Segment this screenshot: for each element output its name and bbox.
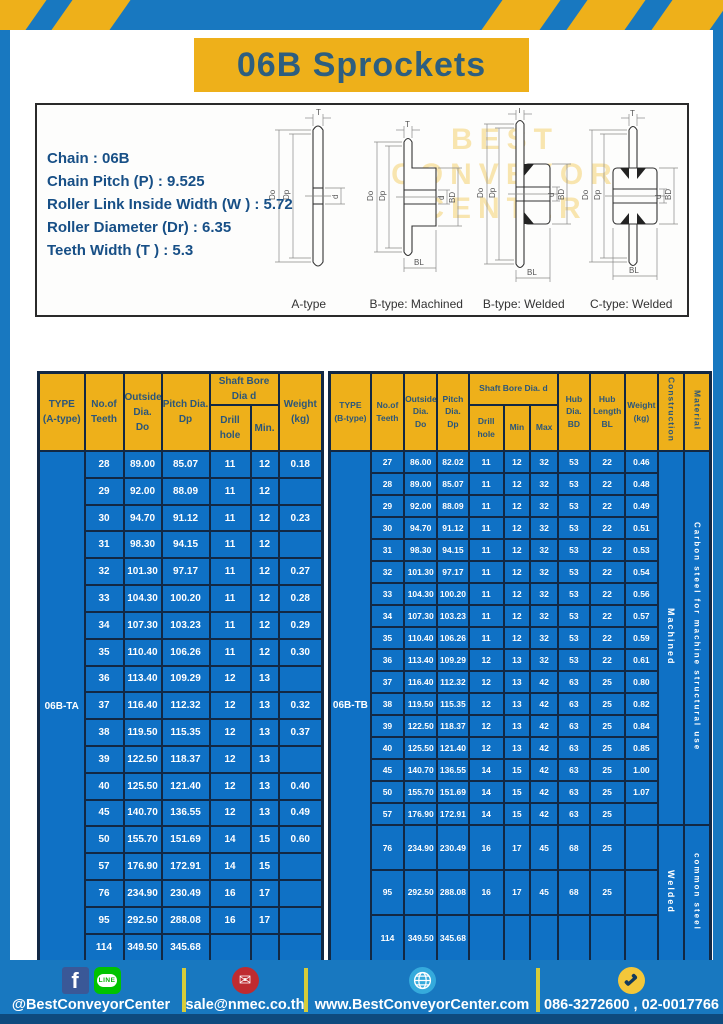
cell: 172.91 [162, 853, 210, 880]
table-row: 2889.0085.0711123253220.48 [330, 473, 711, 495]
cell: 57 [371, 803, 404, 825]
cell: 25 [590, 693, 625, 715]
cell: 115.35 [162, 719, 210, 746]
cell: 14 [210, 853, 251, 880]
facebook-icon: f [62, 967, 89, 994]
mail-icon: ✉ [232, 967, 259, 994]
cell: 25 [590, 803, 625, 825]
col-hub-length-b: Hub Length BL [590, 373, 625, 451]
cell: 12 [504, 495, 530, 517]
cell: 16 [210, 880, 251, 907]
cell: 12 [251, 451, 279, 478]
cell: 82.02 [437, 451, 468, 473]
col-outside-a: Outside Dia. Do [124, 373, 162, 452]
svg-text:d: d [437, 196, 446, 200]
cell: 22 [590, 561, 625, 583]
cell: 22 [590, 473, 625, 495]
svg-text:BD: BD [448, 192, 457, 203]
cell: 104.30 [124, 585, 162, 612]
cell: 11 [469, 473, 504, 495]
cell: 14 [469, 803, 504, 825]
cell: 94.15 [162, 531, 210, 558]
cell [469, 915, 504, 962]
table-a-type: TYPE (A-type) No.of Teeth Outside Dia. D… [37, 371, 324, 963]
cell: 12 [469, 649, 504, 671]
cell: 11 [210, 451, 251, 478]
cell: 103.23 [162, 612, 210, 639]
col-weight-a: Weight (kg) [279, 373, 323, 452]
cell: 114 [371, 915, 404, 962]
cell: 45 [85, 800, 124, 827]
cell: 125.50 [404, 737, 437, 759]
cell: 92.00 [404, 495, 437, 517]
cell: 230.49 [162, 880, 210, 907]
col-shaft-bore-a: Shaft Bore Dia d [210, 373, 279, 406]
cell: 107.30 [124, 612, 162, 639]
cell: 29 [371, 495, 404, 517]
cell: 95 [371, 870, 404, 915]
cell: 17 [504, 870, 530, 915]
cell: 32 [530, 451, 558, 473]
cell: 12 [210, 773, 251, 800]
cell: 136.55 [162, 800, 210, 827]
cell: 35 [85, 639, 124, 666]
cell [625, 825, 658, 870]
cell: 0.49 [625, 495, 658, 517]
cell: 32 [530, 517, 558, 539]
cell: 22 [590, 605, 625, 627]
cell: 0.54 [625, 561, 658, 583]
table-row: 76234.90230.491617456825Weldedcommon ste… [330, 825, 711, 870]
cell: 292.50 [124, 907, 162, 934]
cell [279, 666, 323, 693]
cell: 176.90 [404, 803, 437, 825]
svg-text:BD: BD [664, 189, 673, 200]
cell: 94.15 [437, 539, 468, 561]
col-min-b: Min [504, 405, 530, 451]
table-b-body: 06B-TB2786.0082.0211123253220.46Machined… [330, 451, 711, 962]
cell: 53 [558, 583, 589, 605]
table-row: 2992.0088.0911123253220.49 [330, 495, 711, 517]
cell: 34 [85, 612, 124, 639]
cell: 234.90 [124, 880, 162, 907]
cell: 32 [530, 583, 558, 605]
cell: 91.12 [437, 517, 468, 539]
cell [251, 934, 279, 962]
merged-cell: 06B-TB [330, 451, 371, 962]
cell: 32 [530, 627, 558, 649]
cell: 25 [590, 715, 625, 737]
cell: 33 [371, 583, 404, 605]
cell: 11 [469, 583, 504, 605]
table-row: 35110.40106.2611123253220.59 [330, 627, 711, 649]
cell: 53 [558, 517, 589, 539]
cell: 42 [530, 671, 558, 693]
cell: 0.49 [279, 800, 323, 827]
cell: 95 [85, 907, 124, 934]
cell: 45 [530, 870, 558, 915]
cell: 22 [590, 451, 625, 473]
col-teeth-a: No.of Teeth [85, 373, 124, 452]
cell: 15 [251, 853, 279, 880]
cell: 12 [210, 666, 251, 693]
cell: 53 [558, 649, 589, 671]
spec-line: Chain Pitch (P) : 9.525 [47, 170, 293, 193]
cell: 136.55 [437, 759, 468, 781]
cell: 15 [504, 781, 530, 803]
cell [279, 746, 323, 773]
cell: 112.32 [437, 671, 468, 693]
cell: 11 [210, 558, 251, 585]
cell: 100.20 [162, 585, 210, 612]
cell: 12 [210, 692, 251, 719]
cell: 106.26 [162, 639, 210, 666]
cell: 32 [371, 561, 404, 583]
cell: 40 [371, 737, 404, 759]
cell: 0.29 [279, 612, 323, 639]
merged-cell: 06B-TA [39, 451, 85, 962]
cell: 0.27 [279, 558, 323, 585]
cell: 13 [251, 692, 279, 719]
cell: 63 [558, 781, 589, 803]
table-row: 36113.40109.2912133253220.61 [330, 649, 711, 671]
cell: 16 [469, 825, 504, 870]
table-b-header: TYPE (B-type) No.of Teeth Outside Dia. D… [330, 373, 711, 451]
cell: 0.28 [279, 585, 323, 612]
cell: 92.00 [124, 478, 162, 505]
svg-text:BL: BL [629, 266, 639, 275]
cell: 155.70 [404, 781, 437, 803]
diagram-row: T Do Dp d [255, 107, 685, 287]
cell: 12 [210, 719, 251, 746]
table-row: 57176.90172.911415426325 [330, 803, 711, 825]
cell: 12 [469, 715, 504, 737]
col-drill-a: Drill hole [210, 405, 251, 451]
title-banner: 06B Sprockets [194, 38, 529, 92]
cell: 16 [210, 907, 251, 934]
cell: 30 [371, 517, 404, 539]
cell: 57 [85, 853, 124, 880]
diagram-captions: A-type B-type: Machined B-type: Welded C… [255, 297, 685, 311]
cell: 37 [371, 671, 404, 693]
cell: 30 [85, 505, 124, 532]
cell: 42 [530, 803, 558, 825]
table-row: 114349.50345.68 [330, 915, 711, 962]
cell [279, 531, 323, 558]
cell: 85.07 [437, 473, 468, 495]
cell: 63 [558, 737, 589, 759]
cell: 97.17 [437, 561, 468, 583]
cell: 15 [504, 803, 530, 825]
cell: 36 [371, 649, 404, 671]
cell: 122.50 [124, 746, 162, 773]
cell: 94.70 [124, 505, 162, 532]
cell [625, 803, 658, 825]
cell: 45 [371, 759, 404, 781]
cell: 28 [371, 473, 404, 495]
table-row: 37116.40112.3212134263250.80 [330, 671, 711, 693]
cell: 0.37 [279, 719, 323, 746]
cell: 113.40 [404, 649, 437, 671]
cell: 110.40 [124, 639, 162, 666]
cell [279, 853, 323, 880]
table-row: 40125.50121.4012134263250.85 [330, 737, 711, 759]
cell: 13 [504, 649, 530, 671]
cell: 1.00 [625, 759, 658, 781]
cell: 0.57 [625, 605, 658, 627]
cell: 0.53 [625, 539, 658, 561]
table-row: 34107.30103.2311123253220.57 [330, 605, 711, 627]
cell: 116.40 [404, 671, 437, 693]
cell: 63 [558, 671, 589, 693]
cell: 0.82 [625, 693, 658, 715]
cell [279, 478, 323, 505]
cell: 0.59 [625, 627, 658, 649]
cell: 17 [251, 880, 279, 907]
spec-line: Teeth Width (T ) : 5.3 [47, 239, 293, 262]
cell: 155.70 [124, 826, 162, 853]
table-row: 3094.7091.1211123253220.51 [330, 517, 711, 539]
website-label: www.BestConveyorCenter.com [315, 997, 530, 1013]
cell: 12 [251, 531, 279, 558]
cell: 12 [469, 671, 504, 693]
cell [279, 880, 323, 907]
cell: 0.60 [279, 826, 323, 853]
cell: 88.09 [437, 495, 468, 517]
cell: 125.50 [124, 773, 162, 800]
table-row: 95292.50288.081617456825 [330, 870, 711, 915]
cell: 0.56 [625, 583, 658, 605]
svg-text:Do: Do [476, 187, 485, 198]
cell: 230.49 [437, 825, 468, 870]
cell: 63 [558, 803, 589, 825]
cell: 63 [558, 693, 589, 715]
cell: 32 [530, 605, 558, 627]
col-teeth-b: No.of Teeth [371, 373, 404, 451]
cell: 35 [371, 627, 404, 649]
svg-text:Do: Do [366, 190, 375, 201]
merged-cell: Welded [658, 825, 684, 961]
cell [504, 915, 530, 962]
cell: 53 [558, 539, 589, 561]
cell: 13 [251, 773, 279, 800]
cell: 42 [530, 737, 558, 759]
cell: 0.80 [625, 671, 658, 693]
cell: 42 [530, 715, 558, 737]
diagram-b-type-welded: T Do Dp d BD BL [470, 107, 578, 287]
cell: 12 [504, 451, 530, 473]
caption-b-machined: B-type: Machined [363, 297, 471, 311]
top-hazard-band [0, 0, 723, 30]
cell: 53 [558, 473, 589, 495]
cell: 0.40 [279, 773, 323, 800]
cell: 86.00 [404, 451, 437, 473]
cell: 12 [504, 539, 530, 561]
cell: 36 [85, 666, 124, 693]
cell: 101.30 [124, 558, 162, 585]
cell: 11 [210, 612, 251, 639]
cell: 0.84 [625, 715, 658, 737]
svg-text:T: T [517, 108, 522, 115]
cell: 112.32 [162, 692, 210, 719]
cell: 13 [504, 671, 530, 693]
cell: 25 [590, 825, 625, 870]
cell: 42 [530, 781, 558, 803]
cell: 288.08 [437, 870, 468, 915]
cell: 76 [85, 880, 124, 907]
cell: 121.40 [437, 737, 468, 759]
cell: 172.91 [437, 803, 468, 825]
cell: 32 [530, 473, 558, 495]
cell: 39 [371, 715, 404, 737]
cell: 27 [371, 451, 404, 473]
cell: 13 [251, 800, 279, 827]
cell: 345.68 [437, 915, 468, 962]
cell: 14 [210, 826, 251, 853]
hazard-stripe [647, 0, 723, 30]
svg-text:T: T [405, 120, 410, 129]
hazard-stripe [562, 0, 649, 30]
col-drill-b: Drill hole [469, 405, 504, 451]
table-row: 06B-TB2786.0082.0211123253220.46Machined… [330, 451, 711, 473]
cell: 17 [504, 825, 530, 870]
cell [279, 907, 323, 934]
cell: 349.50 [404, 915, 437, 962]
cell: 11 [469, 627, 504, 649]
col-hub-dia-b: Hub Dia. BD [558, 373, 589, 451]
cell: 38 [371, 693, 404, 715]
caption-c-welded: C-type: Welded [578, 297, 686, 311]
cell: 121.40 [162, 773, 210, 800]
table-row: 32101.3097.1711123253220.54 [330, 561, 711, 583]
cell: 50 [371, 781, 404, 803]
cell: 13 [251, 666, 279, 693]
cell: 176.90 [124, 853, 162, 880]
cell: 12 [210, 746, 251, 773]
col-weight-b: Weight (kg) [625, 373, 658, 451]
spec-line: Chain : 06B [47, 147, 293, 170]
cell: 33 [85, 585, 124, 612]
cell: 22 [590, 495, 625, 517]
cell: 11 [210, 505, 251, 532]
social-handle-label: @BestConveyorCenter [12, 997, 170, 1013]
cell: 31 [371, 539, 404, 561]
hazard-stripe [477, 0, 564, 30]
table-row: 45140.70136.5514154263251.00 [330, 759, 711, 781]
table-row: 3198.3094.1511123253220.53 [330, 539, 711, 561]
cell: 98.30 [124, 531, 162, 558]
table-row: 33104.30100.2011123253220.56 [330, 583, 711, 605]
diagram-b-type-machined: T Do Dp d BD BL [363, 107, 471, 287]
cell: 11 [469, 561, 504, 583]
svg-text:d: d [654, 195, 663, 199]
cell: 118.37 [437, 715, 468, 737]
cell: 89.00 [404, 473, 437, 495]
cell: 42 [530, 693, 558, 715]
cell: 13 [504, 693, 530, 715]
cell [625, 915, 658, 962]
cell: 13 [251, 719, 279, 746]
cell: 25 [590, 781, 625, 803]
col-construction-b: Construction [658, 373, 684, 451]
col-min-a: Min. [251, 405, 279, 451]
table-row: 38119.50115.3512134263250.82 [330, 693, 711, 715]
cell: 12 [504, 627, 530, 649]
cell: 25 [590, 870, 625, 915]
svg-text:T: T [630, 109, 635, 118]
cell: 11 [210, 478, 251, 505]
cell: 12 [504, 561, 530, 583]
cell: 12 [504, 517, 530, 539]
cell: 0.48 [625, 473, 658, 495]
globe-icon [409, 967, 436, 994]
cell: 63 [558, 715, 589, 737]
cell: 12 [251, 558, 279, 585]
cell: 91.12 [162, 505, 210, 532]
cell: 32 [530, 649, 558, 671]
col-material-b: Material [684, 373, 710, 451]
merged-cell: Machined [658, 451, 684, 826]
cell: 116.40 [124, 692, 162, 719]
catalog-page: 06B Sprockets BEST CONVEYOR CENTER Chain… [10, 30, 713, 960]
cell: 12 [504, 583, 530, 605]
cell: 25 [590, 671, 625, 693]
cell: 85.07 [162, 451, 210, 478]
cell: 292.50 [404, 870, 437, 915]
cell: 12 [251, 639, 279, 666]
cell: 40 [85, 773, 124, 800]
cell: 22 [590, 583, 625, 605]
cell: 12 [504, 473, 530, 495]
cell: 28 [85, 451, 124, 478]
cell: 22 [590, 539, 625, 561]
cell: 14 [469, 759, 504, 781]
cell: 12 [251, 585, 279, 612]
cell: 12 [469, 693, 504, 715]
page-title: 06B Sprockets [237, 46, 486, 85]
cell: 234.90 [404, 825, 437, 870]
cell: 151.69 [162, 826, 210, 853]
cell: 53 [558, 627, 589, 649]
cell: 11 [469, 517, 504, 539]
cell: 50 [85, 826, 124, 853]
cell: 103.23 [437, 605, 468, 627]
cell: 118.37 [162, 746, 210, 773]
cell: 25 [590, 759, 625, 781]
cell: 32 [530, 539, 558, 561]
cell [558, 915, 589, 962]
line-badge: LINE [97, 974, 117, 987]
cell: 53 [558, 605, 589, 627]
table-row: 39122.50118.3712134263250.84 [330, 715, 711, 737]
table-a-header: TYPE (A-type) No.of Teeth Outside Dia. D… [39, 373, 323, 452]
cell: 37 [85, 692, 124, 719]
cell: 12 [469, 737, 504, 759]
col-pitch-a: Pitch Dia. Dp [162, 373, 210, 452]
caption-a-type: A-type [255, 297, 363, 311]
cell: 22 [590, 517, 625, 539]
cell: 12 [251, 505, 279, 532]
cell: 12 [504, 605, 530, 627]
cell: 88.09 [162, 478, 210, 505]
cell: 53 [558, 451, 589, 473]
cell: 29 [85, 478, 124, 505]
cell: 345.68 [162, 934, 210, 962]
cell: 98.30 [404, 539, 437, 561]
email-label: sale@nmec.co.th [186, 997, 305, 1013]
cell [625, 870, 658, 915]
col-type-a: TYPE (A-type) [39, 373, 85, 452]
